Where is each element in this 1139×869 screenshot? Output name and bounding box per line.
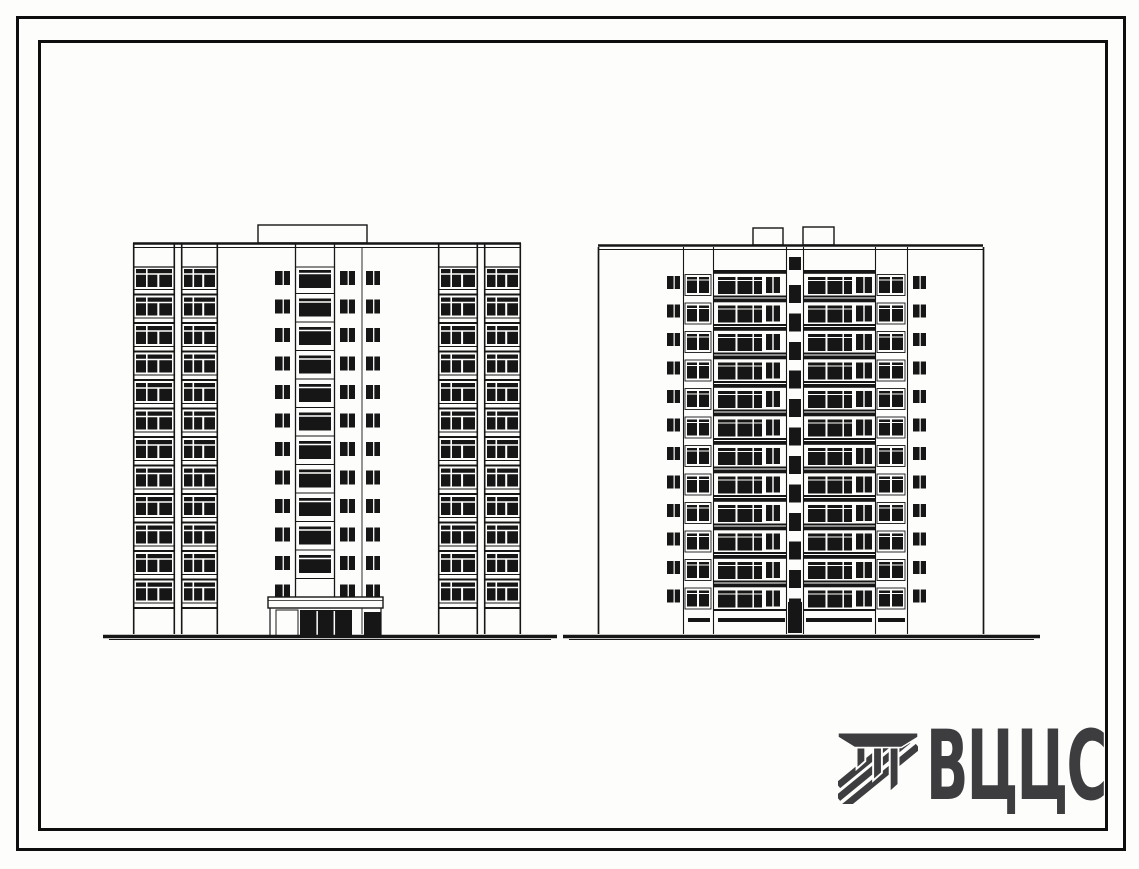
courtyard-facade-elevation: [598, 227, 984, 634]
logo-text: ВЦЦС: [926, 718, 1106, 814]
institute-logo: ВЦЦС: [838, 718, 1139, 814]
main-facade-elevation: [133, 225, 521, 636]
hatched-beam-logo-icon: [838, 728, 918, 804]
ground-line: [103, 637, 1040, 640]
drawing-sheet: ВЦЦС: [0, 0, 1139, 869]
